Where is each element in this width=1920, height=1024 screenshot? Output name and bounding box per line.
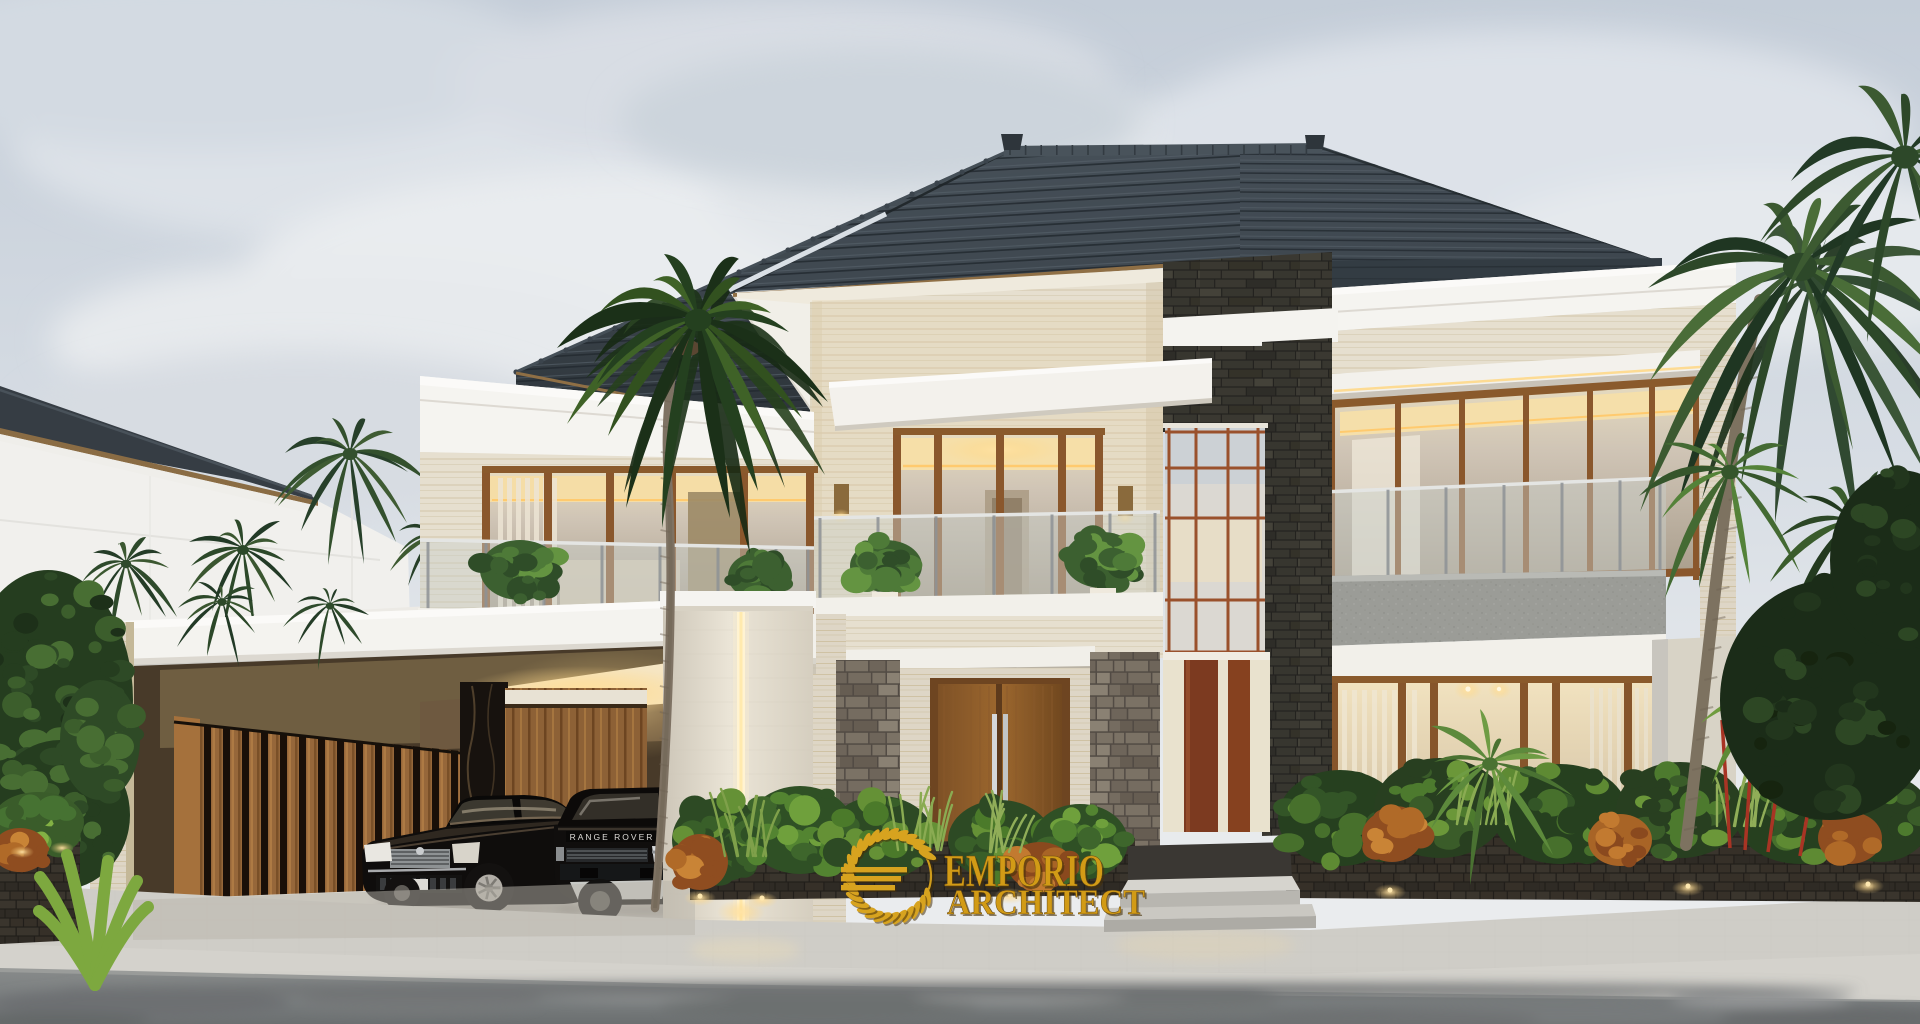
svg-text:RANGE ROVER: RANGE ROVER [570, 832, 655, 842]
svg-text:ARCHITECT: ARCHITECT [947, 882, 1145, 922]
